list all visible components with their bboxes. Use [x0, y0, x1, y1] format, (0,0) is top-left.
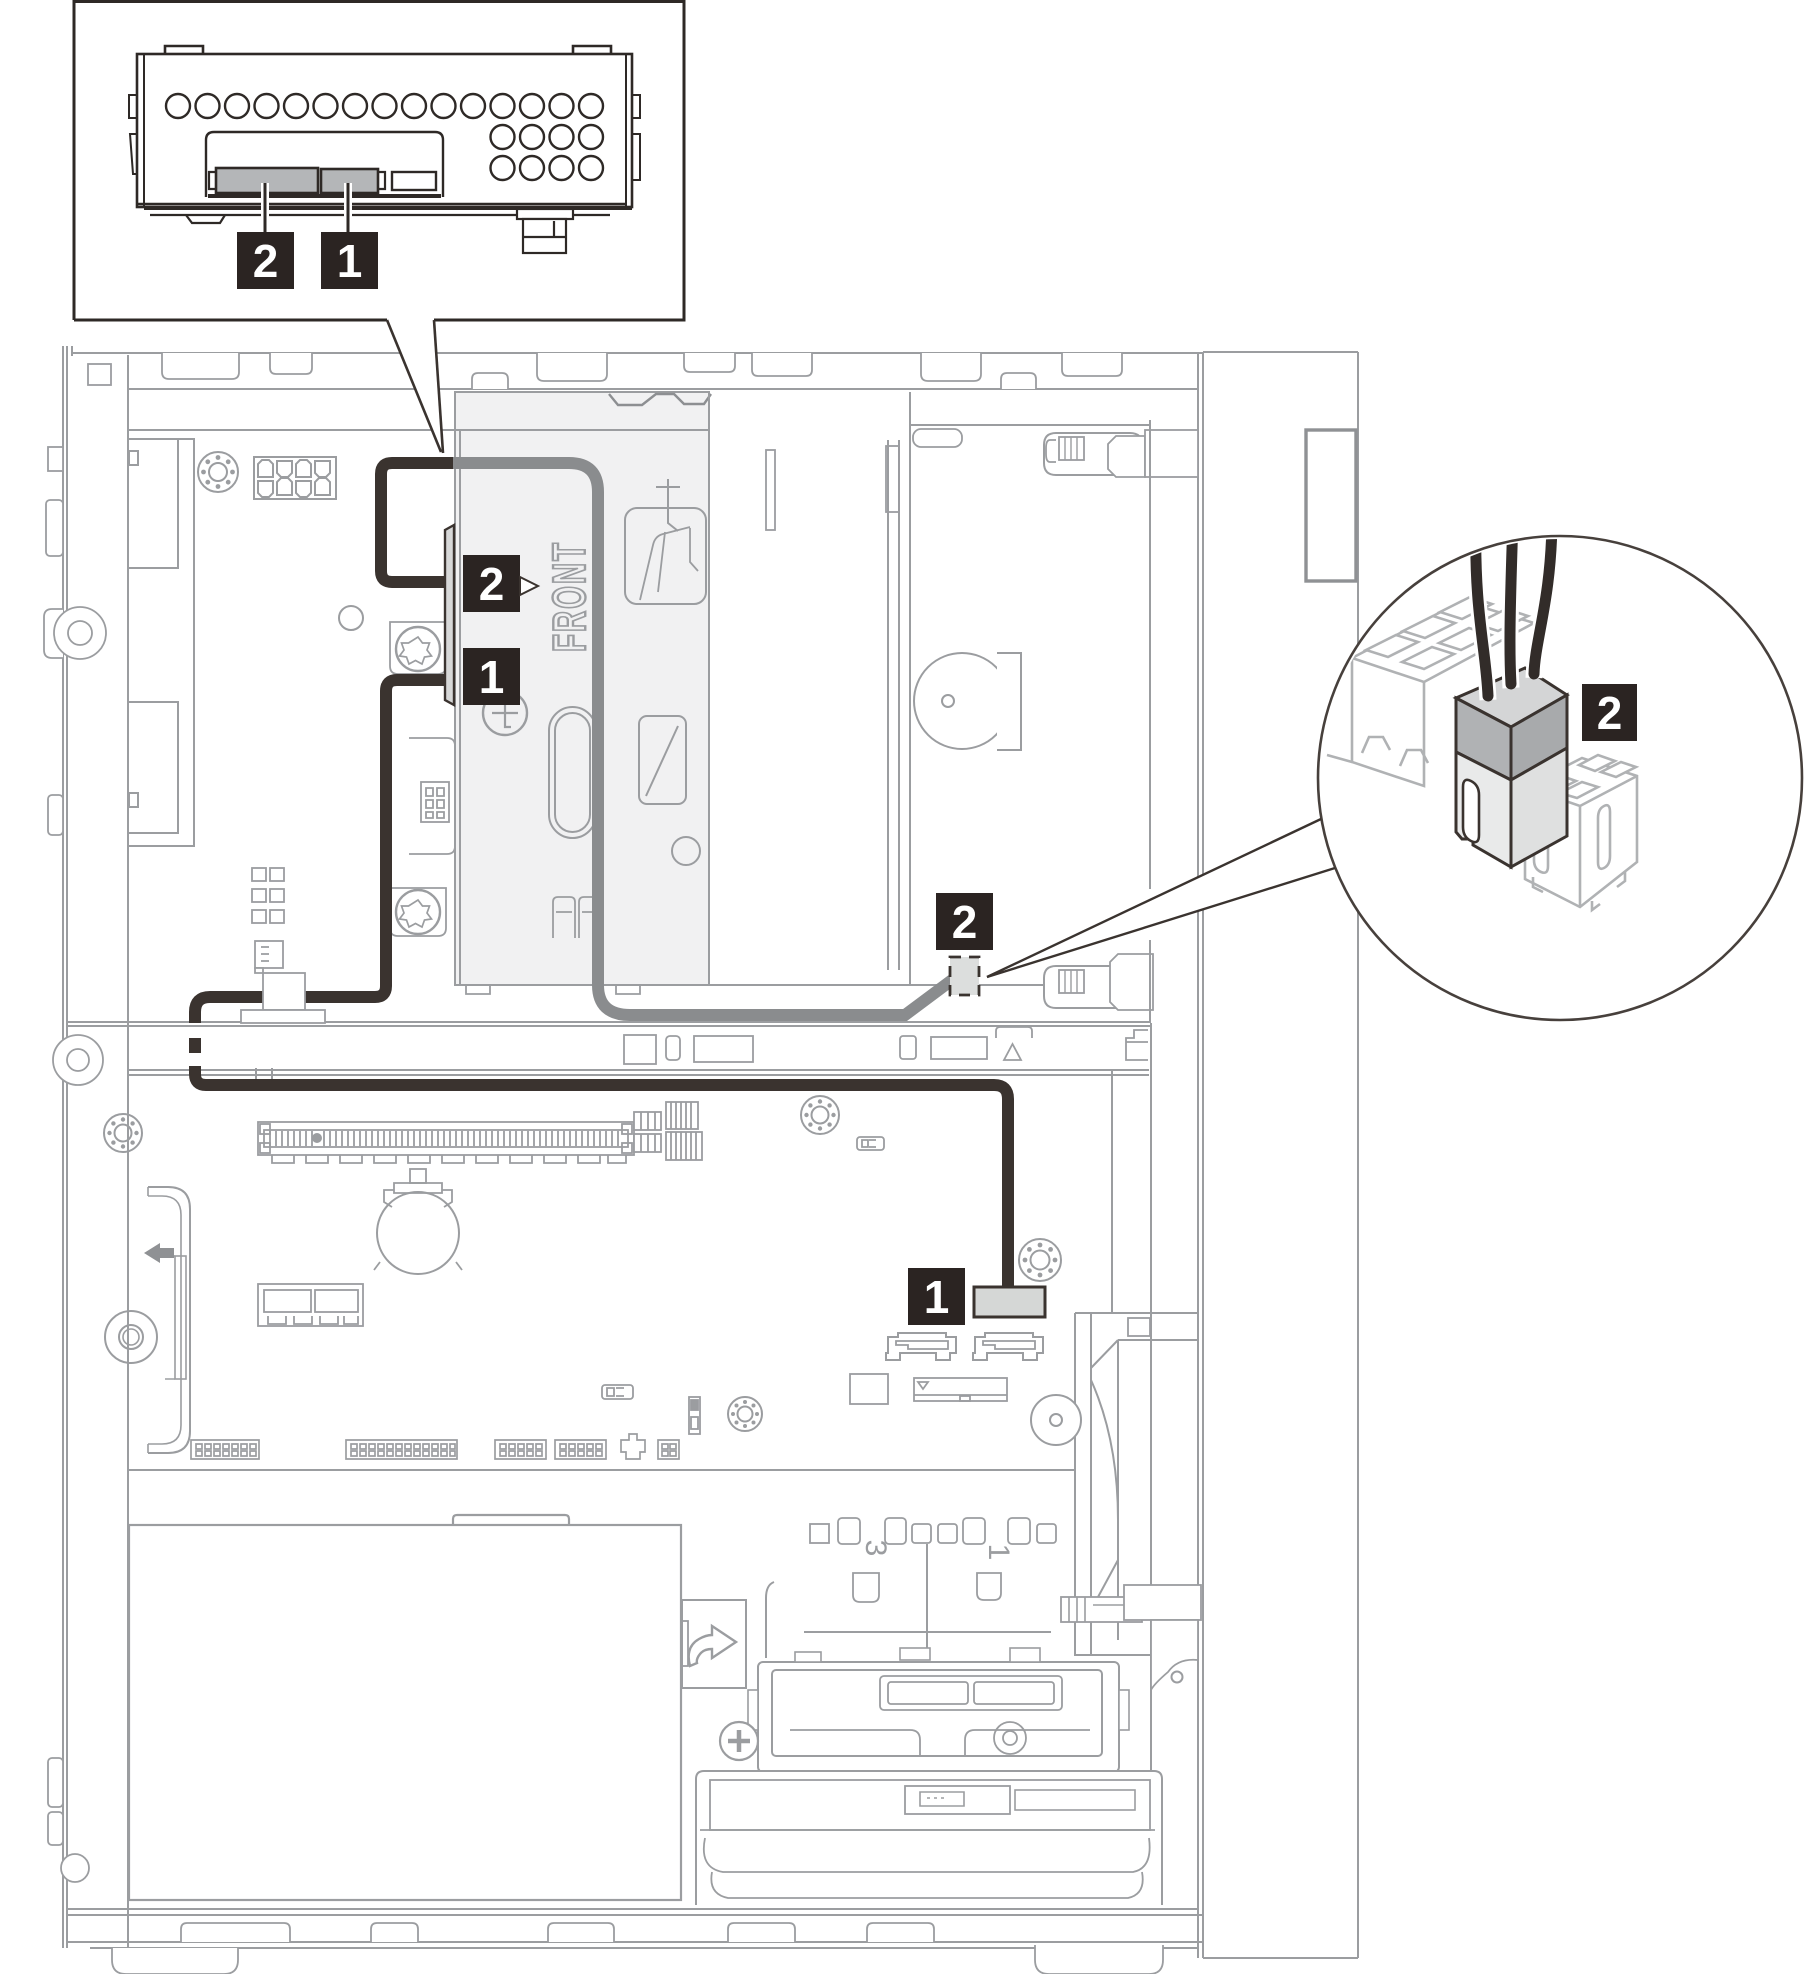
svg-text:1: 1 — [337, 235, 363, 287]
svg-text:1: 1 — [479, 651, 505, 703]
svg-text:2: 2 — [479, 558, 505, 610]
svg-text:2: 2 — [1597, 687, 1623, 739]
svg-text:1: 1 — [982, 1544, 1015, 1561]
svg-text:FRONT: FRONT — [545, 541, 596, 652]
svg-text:2: 2 — [253, 235, 279, 287]
svg-text:2: 2 — [952, 896, 978, 948]
svg-text:3: 3 — [859, 1540, 892, 1557]
svg-text:1: 1 — [924, 1271, 950, 1323]
